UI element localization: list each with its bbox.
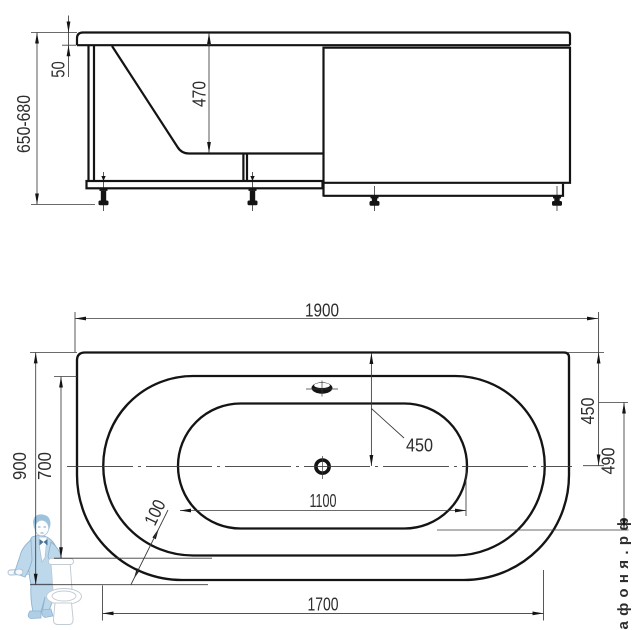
svg-text:450: 450	[578, 398, 598, 425]
svg-text:50: 50	[49, 61, 69, 78]
svg-text:470: 470	[190, 81, 210, 107]
svg-text:1700: 1700	[308, 595, 339, 615]
svg-text:650-680: 650-680	[14, 95, 34, 153]
svg-text:450: 450	[406, 436, 433, 456]
svg-text:700: 700	[35, 452, 55, 480]
svg-text:1900: 1900	[305, 301, 339, 321]
svg-text:1100: 1100	[310, 491, 337, 511]
svg-text:900: 900	[10, 452, 30, 480]
svg-text:490: 490	[599, 448, 619, 475]
